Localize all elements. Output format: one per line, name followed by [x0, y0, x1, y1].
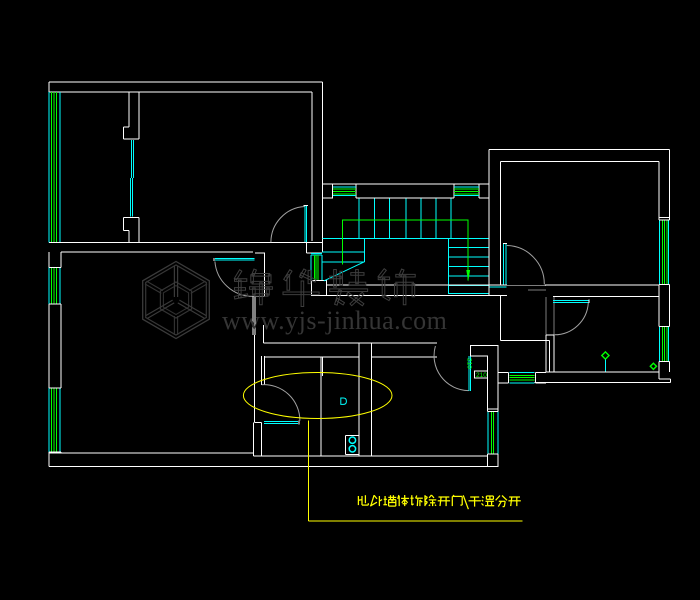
svg-text:210: 210: [476, 372, 487, 379]
svg-text:www.yjs-jinhua.com: www.yjs-jinhua.com: [222, 306, 447, 335]
svg-text:210: 210: [466, 358, 473, 369]
